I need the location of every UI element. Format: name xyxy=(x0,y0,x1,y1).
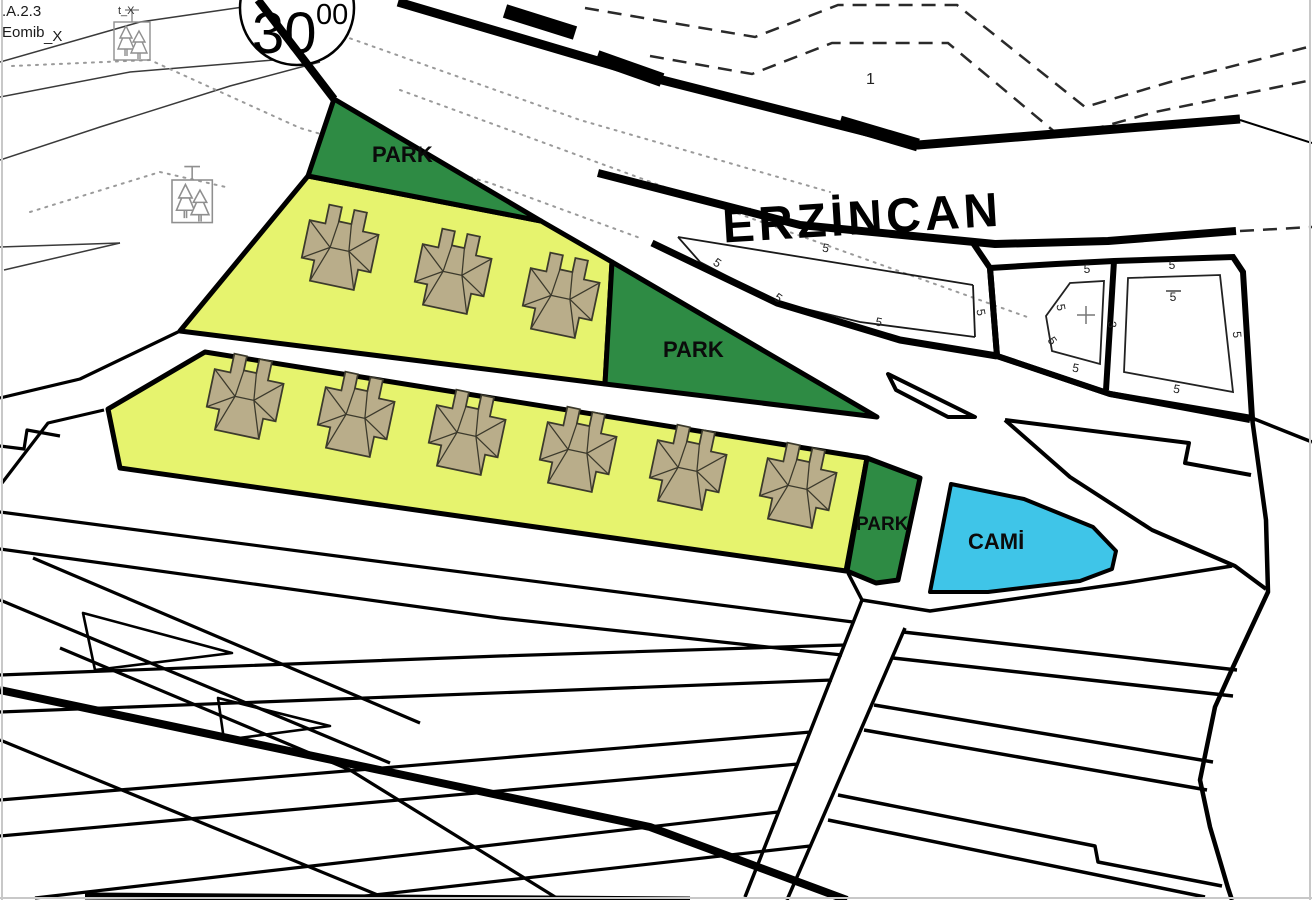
mosque-label: CAMİ xyxy=(968,529,1024,554)
tree-symbol-box xyxy=(172,167,212,223)
traffic-island xyxy=(888,374,975,417)
setback-line-right-parcel xyxy=(1124,275,1233,392)
setback-distance-label: 5 xyxy=(1230,331,1245,339)
tree-symbol-box xyxy=(114,10,150,60)
plan-canvas: .A.2.3 Eomib _X t_X 30 00 1 ERZİNCAN PAR… xyxy=(0,0,1312,900)
parcel-block-right xyxy=(990,257,1252,418)
parcel-cross-mark xyxy=(1077,306,1095,324)
plan-code-label-2-suffix: _X xyxy=(43,28,62,45)
setback-distance-label: 3 xyxy=(1105,321,1120,329)
plan-code-label-2: Eomib xyxy=(2,24,45,41)
setback-distance-label: 5 xyxy=(874,315,884,330)
setback-distance-label: 5 xyxy=(1170,290,1177,304)
setback-distance-label: 5 xyxy=(973,308,988,317)
road-width-value: 30 xyxy=(252,1,317,66)
park-label-middle: PARK xyxy=(663,337,724,362)
setback-distance-label: 5 xyxy=(1071,361,1080,376)
zoning-plan-map: .A.2.3 Eomib _X t_X 30 00 1 ERZİNCAN PAR… xyxy=(0,0,1312,900)
symbol-code-label: t_X xyxy=(118,5,135,17)
setback-distance-label: 5 xyxy=(1045,334,1060,348)
setback-line-left-parcel xyxy=(1046,281,1104,364)
setback-distance-label: 5 xyxy=(1172,382,1181,397)
setback-distance-label: 5 xyxy=(1084,262,1091,276)
region-number-label: 1 xyxy=(866,71,875,88)
plan-code-label: .A.2.3 xyxy=(2,3,41,20)
park-label-small: PARK xyxy=(856,514,909,535)
setback-distance-label: 5 xyxy=(821,241,830,256)
setback-distance-label: 5 xyxy=(1053,303,1068,312)
park-label-top: PARK xyxy=(372,142,433,167)
road-width-decimals: 00 xyxy=(316,0,348,31)
setback-distance-label: 5 xyxy=(1169,258,1176,272)
